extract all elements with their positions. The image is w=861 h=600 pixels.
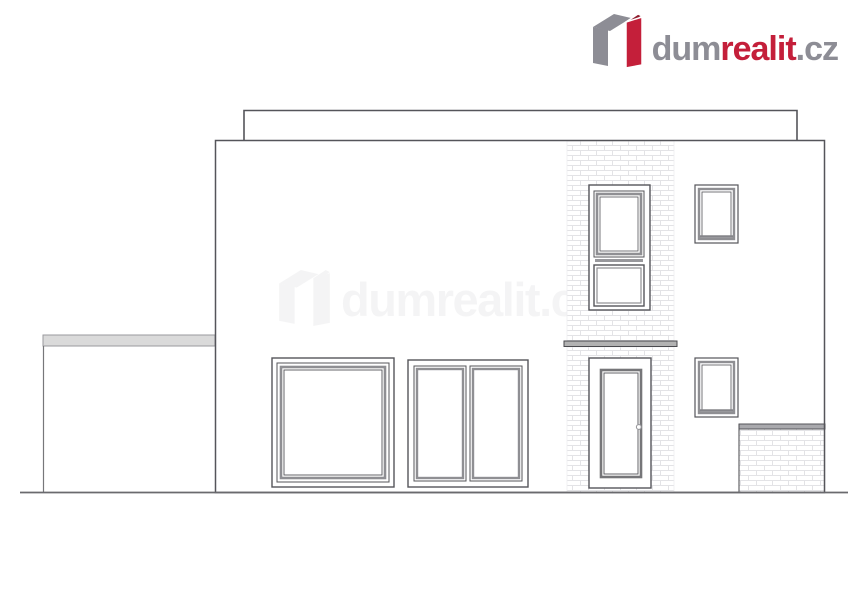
fence-cap-band — [739, 424, 825, 429]
door-handle — [636, 425, 641, 430]
house-elevation-drawing — [0, 0, 861, 600]
entry-door — [589, 358, 651, 488]
real-estate-elevation-image: dumrealit.cz dumrealit.cz — [0, 0, 861, 600]
garage-top-band — [43, 335, 215, 346]
tall-upper-window — [589, 185, 650, 310]
floor-band — [564, 341, 677, 347]
upper-small-window — [695, 185, 738, 243]
lower-small-window — [695, 358, 738, 417]
double-window — [408, 360, 528, 487]
garage-wall — [43, 335, 215, 492]
brick-fence — [739, 424, 825, 492]
large-window — [272, 358, 394, 487]
roof-parapet — [244, 111, 797, 141]
